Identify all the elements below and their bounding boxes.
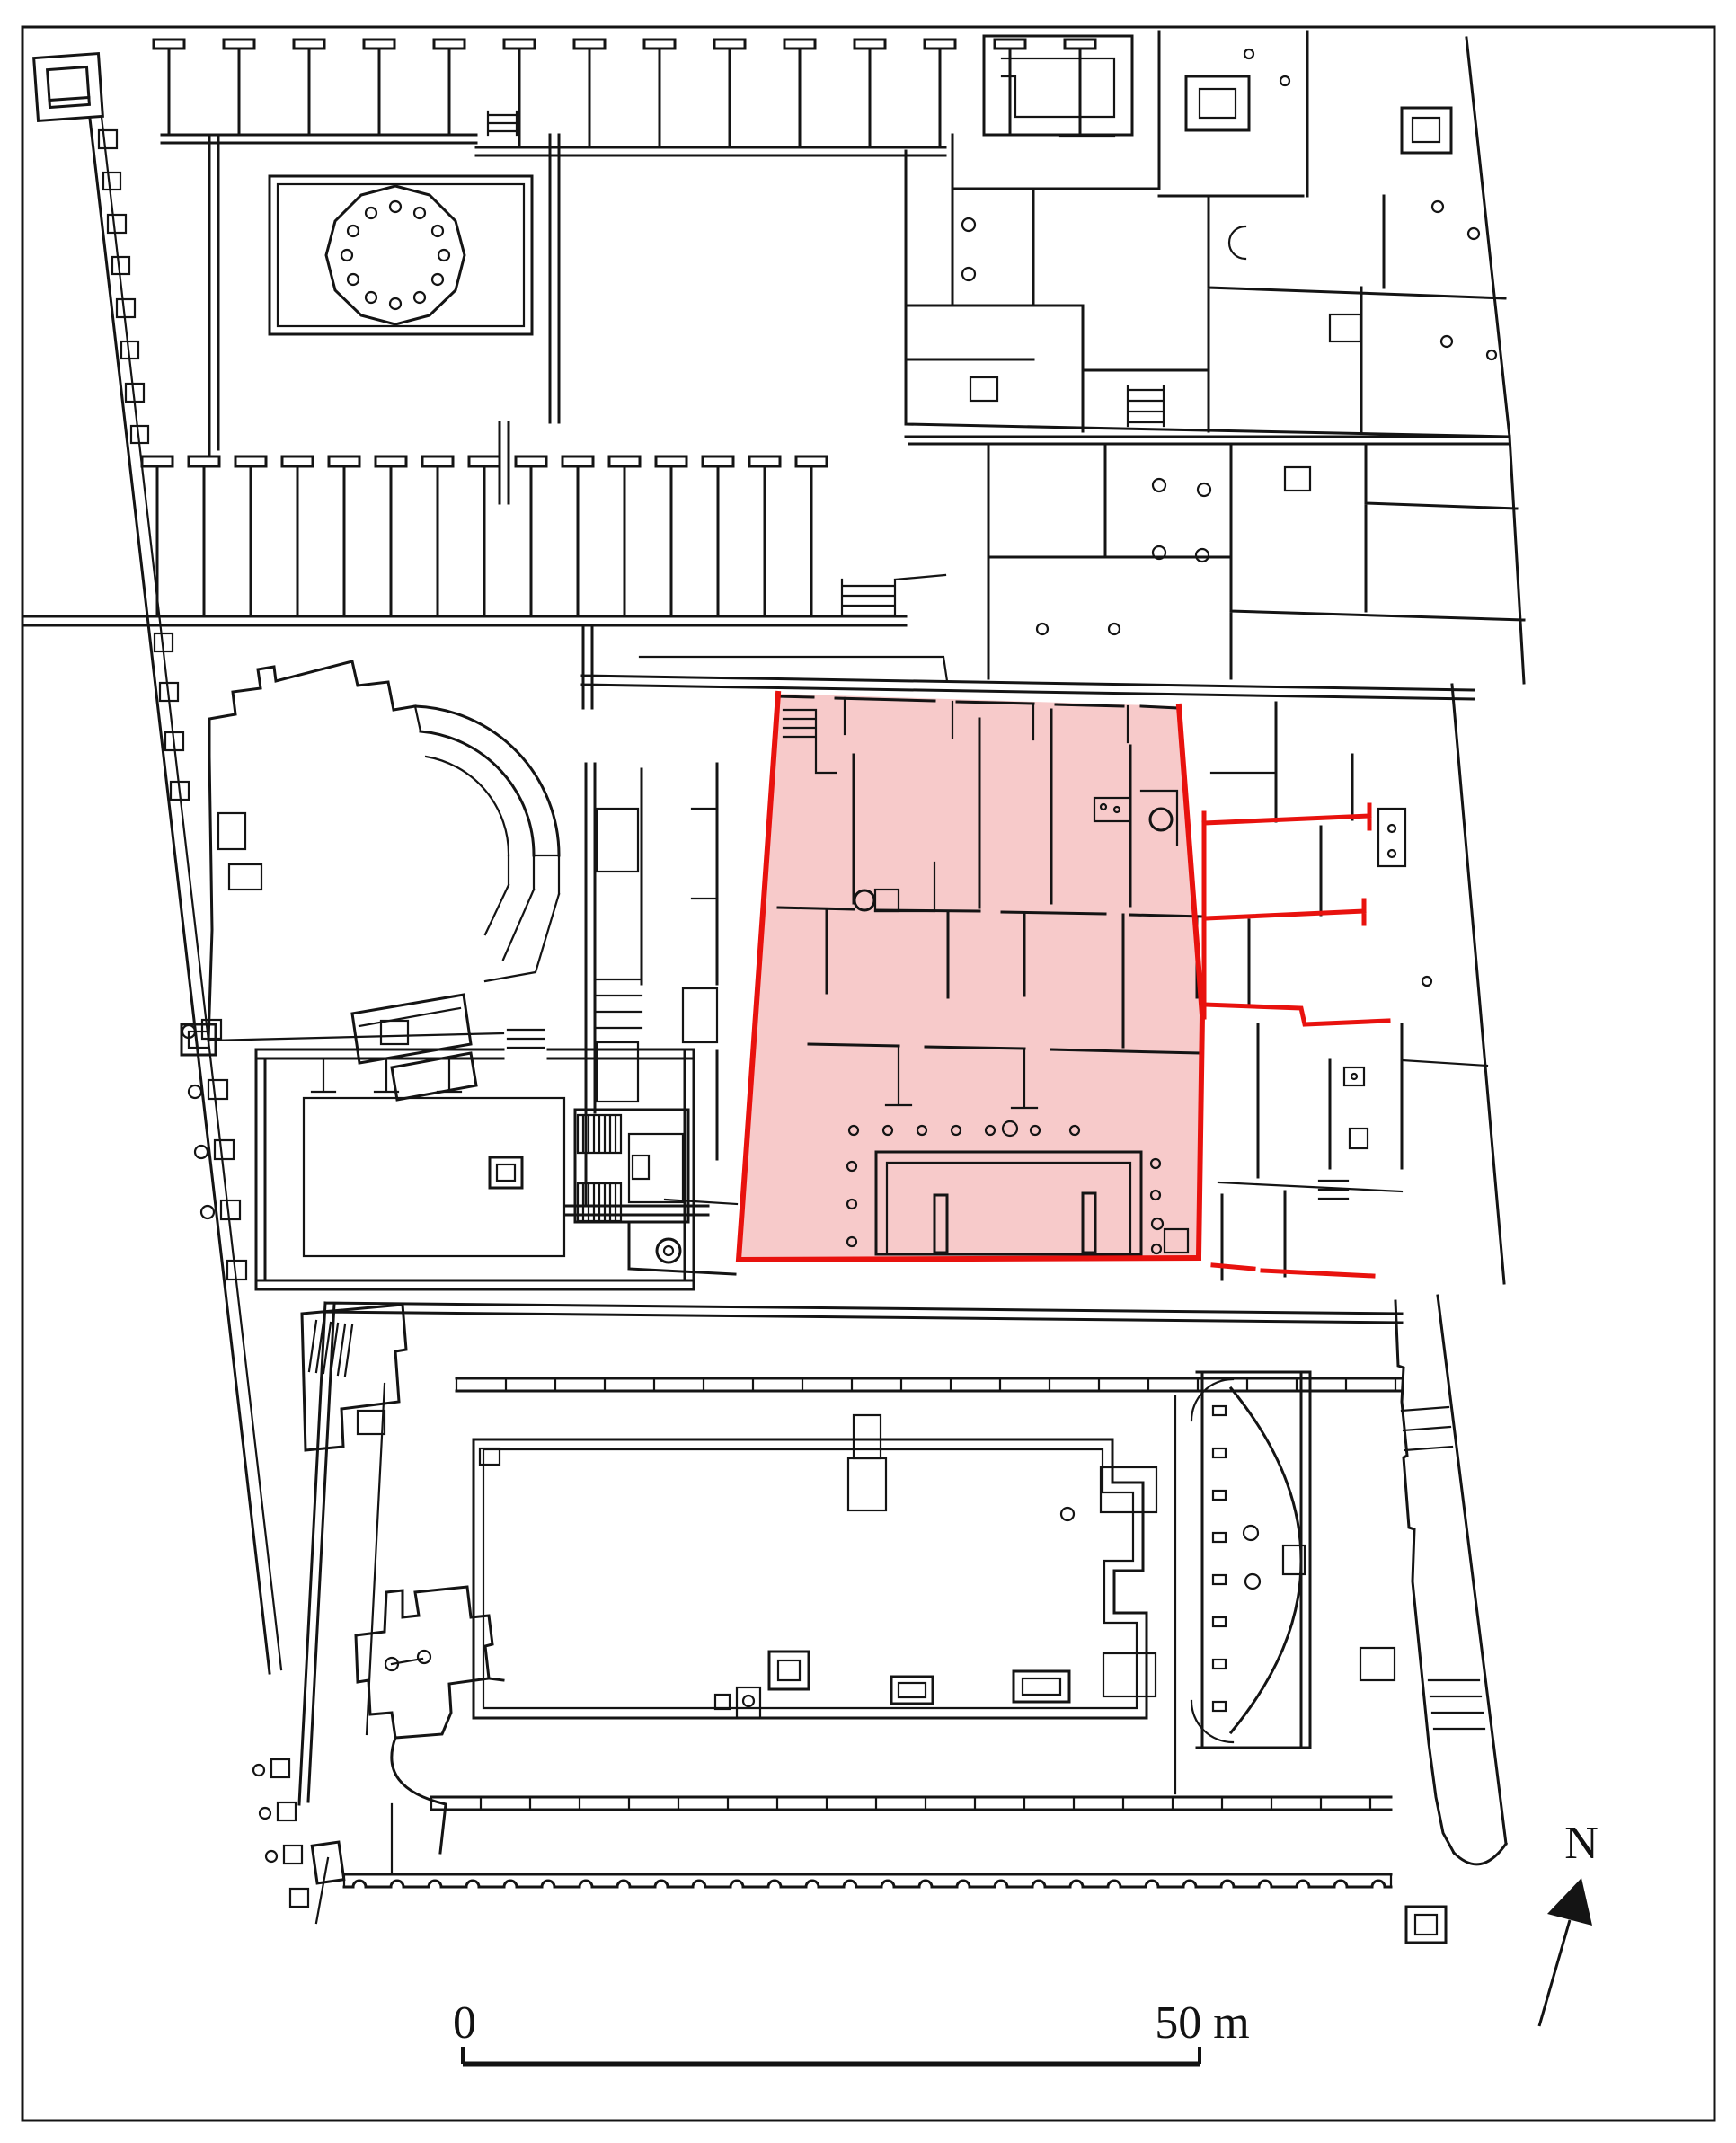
middle-street	[582, 625, 1474, 708]
scale-bar-end-label: 50 m	[1155, 1997, 1249, 2049]
precinct-colonnade	[304, 1098, 564, 1256]
terrace-wall	[344, 1874, 1391, 1887]
city-wall-strip	[1360, 1296, 1506, 1943]
peristyle-south-colonnade	[25, 422, 945, 625]
north-arrow: N	[1539, 1818, 1599, 2026]
scale-bar: 0 50 m	[453, 1997, 1250, 2064]
red-annex-walls	[1204, 805, 1388, 1276]
site-plan-page: 0 50 m N	[0, 0, 1736, 2143]
cavea-outer-arc	[415, 706, 559, 855]
north-arrow-shaft	[1539, 1920, 1570, 2026]
stairs	[1429, 1680, 1484, 1729]
stairs	[842, 575, 945, 616]
apse-niche	[1229, 226, 1245, 259]
column-bases-upper	[99, 130, 148, 443]
street-kerb-inner	[102, 117, 281, 1669]
altar	[490, 1157, 522, 1188]
theatre	[208, 661, 559, 1100]
pillar-row-top	[154, 40, 1114, 147]
stage-building	[352, 995, 471, 1063]
dodecagonal-basin	[326, 186, 465, 324]
stairs	[1128, 386, 1164, 426]
corner-tower	[34, 54, 103, 121]
middle-strip	[566, 764, 737, 1274]
basin-court-outer	[270, 176, 532, 334]
east-annex-block	[1211, 685, 1504, 1283]
highlight-fill	[739, 694, 1202, 1260]
stairs	[1319, 1181, 1348, 1199]
north-colonnade	[154, 40, 1114, 155]
quadriporticus	[299, 1296, 1506, 1943]
highlighted-insula	[739, 694, 1202, 1260]
exedra-arc	[1231, 1388, 1301, 1732]
north-arrow-head	[1547, 1878, 1592, 1926]
column-bases-lower	[182, 1020, 246, 1280]
peristyle-court	[25, 135, 1474, 708]
east-exedra	[1191, 1372, 1310, 1748]
basin-columns	[341, 201, 449, 309]
boundary-marker	[312, 1842, 344, 1923]
great-pool	[474, 1415, 1156, 1718]
site-plan: 0 50 m N	[0, 0, 1736, 2143]
north-label: N	[1564, 1818, 1599, 1869]
northeast-insula	[906, 31, 1524, 683]
street-kerb-outer	[90, 119, 270, 1673]
scale-bar-start-label: 0	[453, 1997, 476, 2049]
cavea-inner-arc	[426, 757, 509, 855]
temple-precinct	[208, 1021, 694, 1289]
